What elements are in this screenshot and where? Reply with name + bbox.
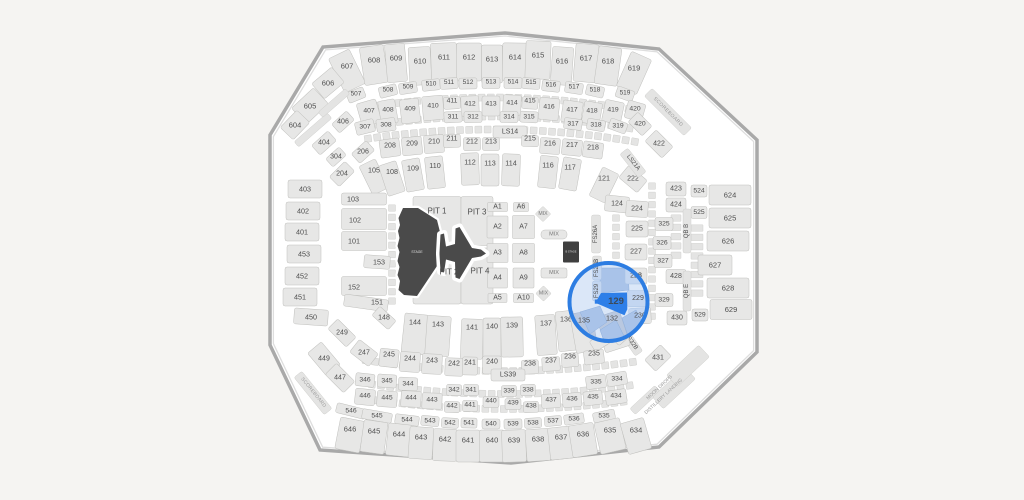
svg-text:413: 413 — [485, 101, 497, 108]
svg-text:A1: A1 — [493, 204, 502, 211]
svg-text:541: 541 — [463, 420, 475, 427]
svg-text:609: 609 — [390, 54, 403, 63]
svg-text:639: 639 — [508, 436, 521, 445]
svg-text:A7: A7 — [519, 224, 528, 231]
svg-text:514: 514 — [508, 79, 519, 86]
svg-text:515: 515 — [526, 79, 537, 86]
svg-text:LS39: LS39 — [500, 372, 516, 379]
svg-text:210: 210 — [428, 139, 440, 146]
svg-text:103: 103 — [347, 195, 359, 204]
svg-text:224: 224 — [631, 206, 643, 213]
svg-text:235: 235 — [588, 351, 600, 358]
svg-text:317: 317 — [567, 121, 579, 128]
svg-text:545: 545 — [371, 413, 383, 420]
svg-text:318: 318 — [590, 122, 602, 129]
svg-text:143: 143 — [432, 320, 444, 329]
svg-text:604: 604 — [289, 121, 302, 130]
svg-text:247: 247 — [358, 350, 370, 357]
svg-text:430: 430 — [671, 315, 683, 322]
svg-text:312: 312 — [467, 114, 479, 121]
svg-text:436: 436 — [566, 396, 578, 403]
svg-text:442: 442 — [446, 403, 458, 410]
svg-text:507: 507 — [351, 91, 362, 98]
svg-text:410: 410 — [427, 103, 439, 110]
svg-text:635: 635 — [604, 426, 617, 435]
svg-text:641: 641 — [462, 436, 475, 445]
svg-text:409: 409 — [404, 106, 416, 113]
svg-text:535: 535 — [598, 413, 610, 420]
svg-text:329: 329 — [658, 297, 670, 304]
svg-text:431: 431 — [652, 355, 664, 362]
svg-text:428: 428 — [670, 273, 682, 280]
svg-text:516: 516 — [546, 82, 557, 89]
svg-text:314: 314 — [503, 114, 515, 121]
svg-text:543: 543 — [424, 418, 436, 425]
svg-text:311: 311 — [448, 114, 459, 121]
svg-text:536: 536 — [568, 416, 580, 423]
svg-text:241: 241 — [464, 360, 476, 367]
svg-text:610: 610 — [414, 57, 427, 66]
svg-text:135: 135 — [578, 316, 590, 325]
svg-text:139: 139 — [506, 321, 518, 330]
svg-text:403: 403 — [299, 185, 311, 194]
svg-text:109: 109 — [407, 164, 419, 173]
svg-text:519: 519 — [620, 90, 631, 97]
svg-text:213: 213 — [485, 139, 497, 146]
svg-text:QB E: QB E — [684, 284, 690, 298]
svg-text:420: 420 — [629, 106, 641, 113]
svg-text:117: 117 — [564, 163, 575, 172]
svg-text:326: 326 — [656, 240, 668, 247]
svg-text:441: 441 — [464, 402, 476, 409]
svg-text:617: 617 — [580, 54, 593, 63]
svg-text:627: 627 — [709, 261, 722, 270]
svg-text:445: 445 — [381, 395, 393, 402]
svg-text:645: 645 — [368, 427, 381, 436]
svg-text:538: 538 — [527, 420, 539, 427]
svg-text:412: 412 — [464, 101, 476, 108]
svg-text:539: 539 — [507, 421, 519, 428]
svg-text:148: 148 — [378, 315, 390, 322]
svg-text:121: 121 — [598, 174, 610, 183]
svg-text:508: 508 — [383, 87, 394, 94]
svg-text:437: 437 — [545, 397, 557, 404]
svg-text:643: 643 — [415, 433, 428, 442]
svg-text:401: 401 — [296, 228, 308, 237]
svg-text:151: 151 — [371, 298, 383, 307]
svg-text:613: 613 — [486, 55, 499, 64]
svg-text:450: 450 — [305, 313, 317, 322]
svg-text:319: 319 — [612, 123, 624, 130]
svg-text:509: 509 — [403, 84, 414, 91]
svg-text:A4: A4 — [493, 275, 502, 282]
svg-text:236: 236 — [564, 354, 576, 361]
svg-text:518: 518 — [590, 87, 601, 94]
svg-text:MIX: MIX — [539, 291, 549, 297]
svg-text:628: 628 — [722, 284, 735, 293]
svg-text:524: 524 — [693, 188, 705, 195]
svg-text:MIX: MIX — [549, 270, 559, 276]
svg-text:PIT 1: PIT 1 — [428, 207, 448, 216]
svg-text:FS29: FS29 — [594, 283, 600, 298]
svg-text:304: 304 — [330, 154, 342, 161]
svg-text:A3: A3 — [493, 250, 502, 257]
svg-text:242: 242 — [448, 361, 460, 368]
svg-text:339: 339 — [503, 388, 515, 395]
svg-text:209: 209 — [406, 141, 418, 148]
svg-text:206: 206 — [357, 149, 369, 156]
svg-text:217: 217 — [566, 142, 578, 149]
svg-text:238: 238 — [524, 361, 536, 368]
svg-text:606: 606 — [322, 79, 335, 88]
svg-text:140: 140 — [486, 322, 498, 331]
svg-text:451: 451 — [294, 293, 306, 302]
svg-text:PIT 3: PIT 3 — [468, 208, 488, 217]
svg-text:FS26A: FS26A — [593, 225, 599, 243]
svg-text:110: 110 — [429, 161, 440, 170]
svg-text:137: 137 — [540, 319, 552, 328]
svg-text:638: 638 — [532, 435, 545, 444]
svg-text:A5: A5 — [493, 295, 502, 302]
svg-text:144: 144 — [409, 318, 421, 327]
svg-text:341: 341 — [465, 387, 477, 394]
svg-text:449: 449 — [318, 356, 330, 363]
svg-text:325: 325 — [658, 221, 670, 228]
svg-text:237: 237 — [545, 358, 557, 365]
svg-text:PIT 4: PIT 4 — [471, 267, 491, 276]
svg-text:626: 626 — [722, 237, 735, 246]
svg-text:605: 605 — [304, 102, 317, 111]
svg-text:345: 345 — [381, 378, 393, 385]
svg-text:444: 444 — [405, 395, 417, 402]
svg-text:625: 625 — [724, 214, 737, 223]
svg-text:212: 212 — [466, 139, 478, 146]
svg-text:MIX: MIX — [538, 211, 548, 217]
svg-text:424: 424 — [670, 202, 682, 209]
svg-text:642: 642 — [439, 435, 452, 444]
svg-text:611: 611 — [438, 53, 450, 62]
svg-text:132: 132 — [606, 314, 618, 323]
svg-text:116: 116 — [542, 161, 553, 170]
svg-text:A9: A9 — [519, 275, 528, 282]
svg-text:245: 245 — [383, 352, 395, 359]
svg-text:619: 619 — [628, 64, 641, 73]
svg-text:629: 629 — [725, 305, 738, 314]
svg-text:416: 416 — [543, 104, 555, 111]
svg-text:646: 646 — [344, 425, 357, 434]
svg-text:406: 406 — [337, 119, 349, 126]
svg-text:153: 153 — [373, 258, 385, 267]
svg-text:443: 443 — [426, 397, 438, 404]
svg-text:208: 208 — [384, 143, 396, 150]
svg-text:225: 225 — [631, 226, 643, 233]
svg-text:434: 434 — [610, 393, 622, 400]
svg-text:407: 407 — [363, 108, 375, 115]
svg-text:101: 101 — [348, 237, 360, 246]
svg-text:607: 607 — [341, 62, 354, 71]
svg-text:452: 452 — [296, 272, 308, 281]
svg-text:MIX: MIX — [549, 232, 559, 238]
svg-text:612: 612 — [463, 53, 476, 62]
svg-text:453: 453 — [298, 250, 310, 259]
svg-text:204: 204 — [336, 171, 348, 178]
svg-text:634: 634 — [630, 426, 643, 435]
svg-text:419: 419 — [607, 107, 619, 114]
svg-text:307: 307 — [359, 124, 371, 131]
svg-text:244: 244 — [404, 356, 416, 363]
svg-text:404: 404 — [318, 140, 330, 147]
svg-text:229: 229 — [632, 295, 644, 302]
svg-text:420: 420 — [634, 121, 646, 128]
svg-text:240: 240 — [486, 359, 498, 366]
svg-text:422: 422 — [653, 141, 665, 148]
svg-text:542: 542 — [444, 420, 456, 427]
svg-text:438: 438 — [525, 403, 537, 410]
svg-text:334: 334 — [611, 376, 623, 383]
svg-text:544: 544 — [401, 417, 413, 424]
svg-text:102: 102 — [349, 216, 361, 225]
svg-text:517: 517 — [569, 84, 580, 91]
svg-text:640: 640 — [486, 436, 499, 445]
svg-text:512: 512 — [463, 79, 474, 86]
svg-text:215: 215 — [524, 136, 536, 143]
svg-text:108: 108 — [386, 167, 398, 176]
svg-text:A2: A2 — [493, 224, 502, 231]
svg-text:440: 440 — [485, 398, 497, 405]
svg-text:525: 525 — [693, 209, 705, 216]
svg-text:346: 346 — [359, 377, 371, 384]
svg-text:608: 608 — [368, 56, 381, 65]
svg-text:113: 113 — [484, 159, 495, 168]
svg-text:636: 636 — [577, 430, 590, 439]
svg-text:513: 513 — [486, 79, 497, 86]
svg-text:624: 624 — [724, 191, 737, 200]
svg-text:447: 447 — [334, 375, 346, 382]
svg-text:112: 112 — [464, 158, 475, 167]
svg-text:511: 511 — [444, 79, 455, 86]
svg-text:615: 615 — [532, 51, 545, 60]
svg-text:644: 644 — [393, 430, 406, 439]
svg-text:308: 308 — [380, 122, 392, 129]
svg-text:435: 435 — [587, 394, 599, 401]
svg-text:227: 227 — [630, 249, 642, 256]
svg-text:A10: A10 — [517, 295, 530, 302]
svg-text:402: 402 — [297, 207, 309, 216]
svg-text:335: 335 — [590, 379, 602, 386]
svg-text:QB B: QB B — [684, 224, 690, 238]
svg-text:216: 216 — [544, 141, 556, 148]
svg-text:PIT 2: PIT 2 — [440, 268, 460, 277]
svg-text:105: 105 — [368, 166, 380, 175]
svg-text:344: 344 — [402, 381, 414, 388]
svg-text:423: 423 — [670, 186, 682, 193]
svg-text:124: 124 — [611, 201, 623, 208]
svg-text:614: 614 — [509, 53, 522, 62]
svg-text:338: 338 — [522, 387, 534, 394]
svg-text:B STAGE: B STAGE — [565, 250, 576, 254]
svg-text:218: 218 — [587, 145, 599, 152]
svg-text:618: 618 — [602, 57, 615, 66]
svg-text:129: 129 — [608, 296, 624, 307]
svg-text:414: 414 — [506, 100, 518, 107]
svg-text:418: 418 — [586, 108, 598, 115]
svg-text:342: 342 — [448, 387, 460, 394]
svg-text:411: 411 — [447, 98, 458, 105]
svg-text:616: 616 — [556, 57, 569, 66]
svg-text:A6: A6 — [517, 204, 526, 211]
svg-text:A8: A8 — [519, 250, 528, 257]
svg-text:211: 211 — [446, 136, 457, 143]
svg-text:315: 315 — [523, 114, 535, 121]
svg-text:546: 546 — [345, 408, 357, 415]
svg-text:FS27B: FS27B — [594, 259, 600, 277]
svg-text:114: 114 — [505, 159, 516, 168]
svg-text:LS14: LS14 — [502, 129, 518, 136]
svg-text:446: 446 — [359, 393, 371, 400]
svg-text:417: 417 — [566, 107, 578, 114]
svg-text:529: 529 — [694, 312, 706, 319]
svg-text:327: 327 — [657, 258, 669, 265]
svg-text:243: 243 — [426, 358, 438, 365]
svg-text:415: 415 — [524, 98, 536, 105]
svg-text:408: 408 — [382, 107, 394, 114]
svg-text:537: 537 — [547, 418, 559, 425]
svg-text:540: 540 — [485, 421, 497, 428]
svg-text:152: 152 — [348, 283, 360, 292]
svg-text:637: 637 — [555, 433, 568, 442]
svg-text:141: 141 — [466, 323, 478, 332]
svg-text:STAGE: STAGE — [411, 250, 423, 254]
svg-text:510: 510 — [426, 81, 437, 88]
svg-text:249: 249 — [336, 330, 348, 337]
svg-text:439: 439 — [507, 400, 519, 407]
